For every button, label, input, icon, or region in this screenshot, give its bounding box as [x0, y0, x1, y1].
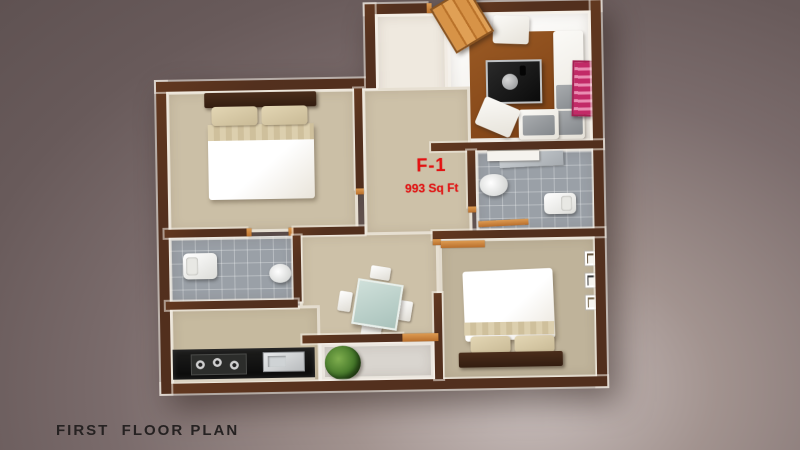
bathroom2-door-frame: [468, 206, 476, 212]
pillow: [211, 106, 257, 126]
coffee-table-icon: [486, 59, 543, 104]
sofa-cushion: [523, 115, 555, 136]
decor-bowl-icon: [502, 74, 518, 90]
wall-bathroom1-right: [293, 235, 302, 301]
toilet-icon: [183, 253, 217, 280]
pillow: [261, 105, 307, 125]
bed-blanket-fold: [464, 321, 554, 336]
ottoman-icon: [493, 15, 530, 44]
pillow: [470, 336, 510, 354]
unit-area: 993 Sq Ft: [382, 180, 482, 196]
toilet-icon: [544, 193, 576, 215]
floor-plan-caption: FIRST FLOOR PLAN: [56, 422, 239, 439]
bed-headboard: [459, 351, 563, 368]
dining-table-icon: [351, 278, 404, 331]
bedroom1-door-frame: [356, 188, 364, 194]
unit-label: F-1: [381, 154, 481, 177]
kitchen-sink-icon: [263, 351, 305, 372]
burner: [196, 360, 205, 369]
toilet-lid: [561, 196, 572, 211]
bed-blanket-fold: [208, 123, 314, 141]
bedroom2-door-leaf: [441, 240, 485, 248]
wall-top-right-of-entry: [477, 0, 601, 12]
dining-chair-icon: [337, 290, 353, 312]
burner: [213, 358, 222, 367]
floor-plan-scene: F-1 993 Sq Ft FIRST FLOOR PLAN: [0, 0, 800, 450]
wall-bedroom1-bottom-a: [164, 228, 246, 237]
sink-basin: [268, 356, 286, 367]
gas-hob-icon: [191, 353, 247, 375]
balcony-door-frame: [402, 333, 438, 342]
pillow: [514, 335, 554, 353]
bathroom1-door-frame: [246, 228, 251, 236]
dining-chair-icon: [370, 265, 392, 281]
decor-vase-icon: [520, 66, 526, 76]
toilet-lid: [186, 257, 198, 275]
wall-bedroom1-bottom-b: [293, 226, 364, 235]
burner: [230, 361, 239, 370]
building-3d-plan: F-1 993 Sq Ft: [147, 0, 624, 400]
bedroom2-door-frame: [433, 239, 441, 245]
wall-foyer-left-exterior: [365, 4, 376, 88]
dining-set: [344, 270, 408, 334]
